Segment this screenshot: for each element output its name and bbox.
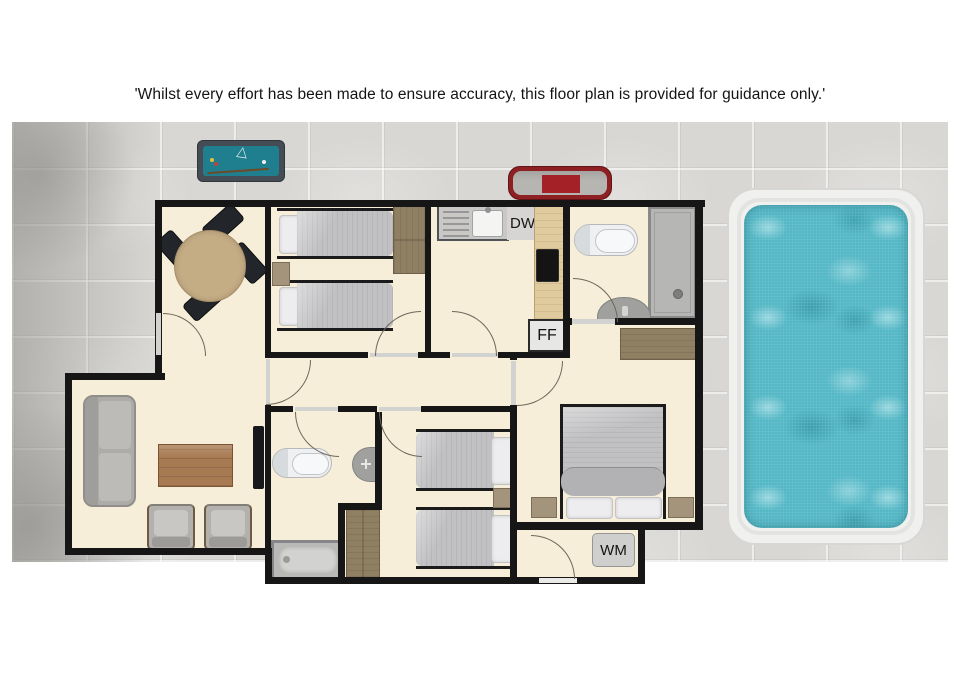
nightstand bbox=[531, 497, 557, 518]
wall bbox=[338, 406, 377, 412]
door-threshold bbox=[511, 361, 516, 405]
wall bbox=[563, 318, 572, 325]
wall bbox=[510, 522, 703, 530]
dishwasher-label-text: DW bbox=[510, 215, 535, 232]
sink-tap bbox=[485, 207, 491, 213]
bbq bbox=[508, 166, 612, 200]
floor-plan-canvas: 'Whilst every effort has been made to en… bbox=[0, 0, 960, 679]
door-threshold bbox=[379, 407, 421, 411]
tv bbox=[253, 426, 264, 489]
wall bbox=[425, 200, 431, 358]
wardrobe bbox=[393, 206, 426, 274]
wall bbox=[421, 406, 517, 412]
wall bbox=[638, 522, 645, 584]
bbq-grill bbox=[542, 175, 580, 193]
duvet bbox=[297, 211, 393, 256]
bathtub bbox=[271, 540, 345, 580]
washing-machine-label: WM bbox=[592, 533, 635, 567]
fridge-freezer-label-text: FF bbox=[537, 327, 557, 345]
wall bbox=[510, 352, 517, 360]
pool-ball-yellow bbox=[210, 158, 214, 162]
single-bed bbox=[416, 507, 515, 569]
bathtub-tap bbox=[283, 556, 290, 563]
wall bbox=[265, 577, 520, 584]
wall bbox=[695, 200, 703, 530]
wall bbox=[65, 373, 165, 380]
armchair-backrest bbox=[152, 537, 190, 547]
sofa-cushion bbox=[99, 401, 131, 449]
pillow bbox=[615, 497, 662, 519]
toilet-cistern bbox=[575, 225, 590, 255]
duvet-fold bbox=[561, 467, 665, 496]
single-bed bbox=[277, 208, 393, 259]
single-bed bbox=[277, 280, 393, 331]
pool-ball-red bbox=[214, 162, 218, 166]
wall bbox=[510, 405, 517, 584]
armchair-backrest bbox=[209, 537, 247, 547]
wall bbox=[265, 352, 368, 358]
pool-ball-white bbox=[262, 160, 266, 164]
duvet bbox=[297, 283, 393, 328]
swimming-pool bbox=[727, 188, 925, 545]
fridge-freezer-label: FF bbox=[528, 319, 566, 352]
toilet-cistern bbox=[273, 449, 288, 477]
wall bbox=[418, 352, 450, 358]
wall bbox=[338, 503, 345, 584]
wall bbox=[498, 352, 563, 358]
coffee-table bbox=[158, 444, 233, 487]
nightstand bbox=[668, 497, 694, 518]
sink-drainer bbox=[443, 210, 469, 237]
washing-machine-label-text: WM bbox=[600, 542, 627, 559]
disclaimer-text: 'Whilst every effort has been made to en… bbox=[0, 86, 960, 104]
wall bbox=[265, 405, 271, 584]
armchair bbox=[147, 504, 195, 550]
kitchen-sink-unit bbox=[437, 205, 509, 241]
basin-tap bbox=[622, 306, 628, 316]
pool-table-rack-triangle-icon: △ bbox=[236, 143, 249, 159]
armchair-seat bbox=[211, 510, 245, 536]
duvet bbox=[416, 432, 494, 488]
single-bed bbox=[416, 429, 515, 491]
sofa bbox=[83, 395, 136, 507]
pillow bbox=[566, 497, 613, 519]
wall bbox=[265, 406, 293, 412]
wardrobe bbox=[620, 328, 696, 360]
toilet-seat bbox=[292, 453, 329, 475]
wall bbox=[65, 373, 72, 555]
sink-bowl bbox=[472, 210, 503, 237]
wardrobe bbox=[346, 509, 380, 578]
duvet bbox=[563, 407, 663, 473]
basin-tap bbox=[365, 459, 367, 469]
wall bbox=[563, 200, 570, 358]
door-threshold bbox=[156, 313, 161, 355]
toilet-seat bbox=[595, 229, 635, 253]
armchair-seat bbox=[154, 510, 188, 536]
nightstand bbox=[272, 262, 290, 286]
shower-tray bbox=[654, 212, 691, 313]
wall bbox=[65, 548, 272, 555]
door-threshold bbox=[295, 407, 338, 411]
toilet bbox=[574, 224, 638, 256]
double-bed bbox=[560, 404, 666, 519]
pool-table: △ bbox=[197, 140, 285, 182]
duvet bbox=[416, 510, 494, 566]
sofa-backrest bbox=[85, 397, 98, 505]
shower-enclosure bbox=[648, 206, 697, 319]
sofa-cushion bbox=[99, 453, 131, 501]
dining-table bbox=[174, 230, 246, 302]
pool-water bbox=[744, 205, 908, 528]
wall bbox=[265, 200, 271, 358]
wall bbox=[615, 318, 703, 325]
shower-drain bbox=[673, 289, 683, 299]
hob bbox=[536, 249, 559, 282]
armchair bbox=[204, 504, 252, 550]
